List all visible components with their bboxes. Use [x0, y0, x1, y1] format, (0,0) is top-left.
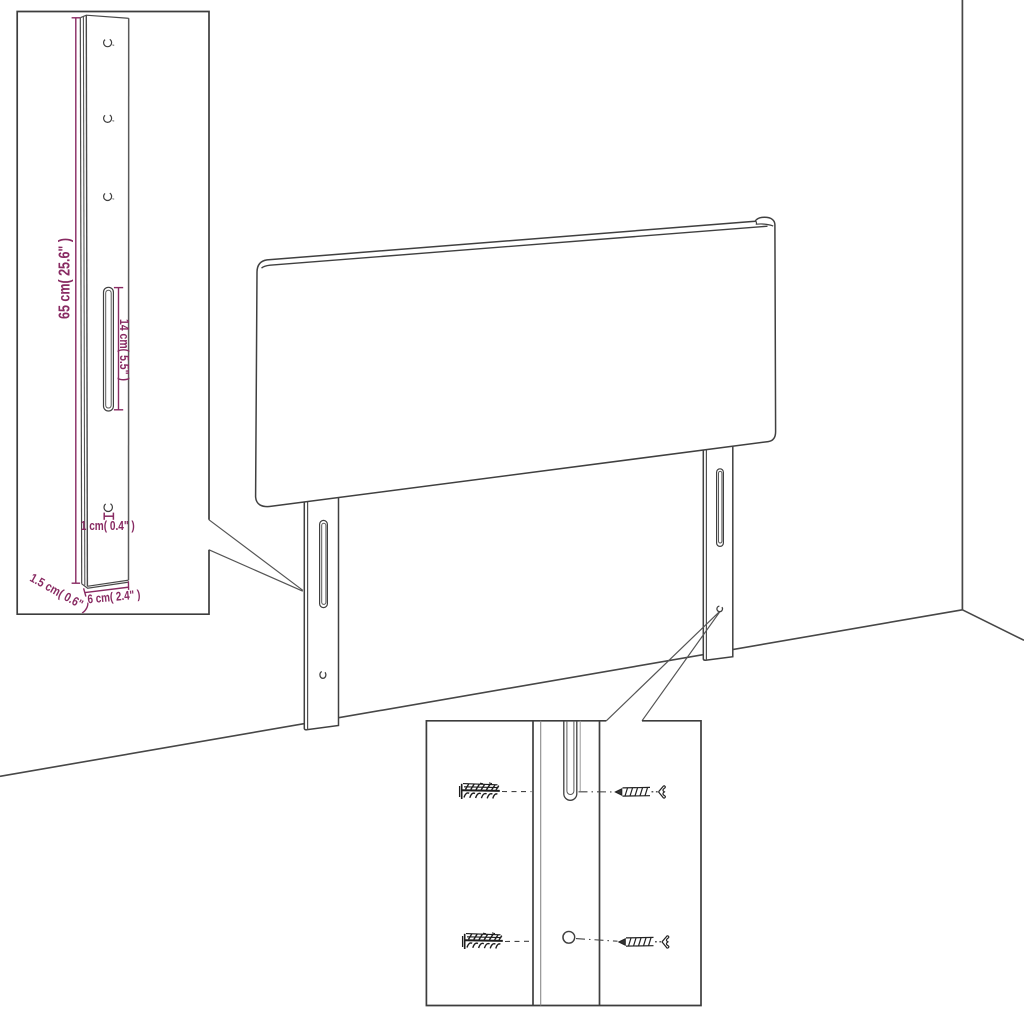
svg-text:14 cm( 5.5" ): 14 cm( 5.5" )	[117, 319, 131, 381]
svg-text:1 cm( 0.4" ): 1 cm( 0.4" )	[81, 519, 135, 533]
svg-text:65 cm( 25.6" ): 65 cm( 25.6" )	[57, 238, 74, 319]
